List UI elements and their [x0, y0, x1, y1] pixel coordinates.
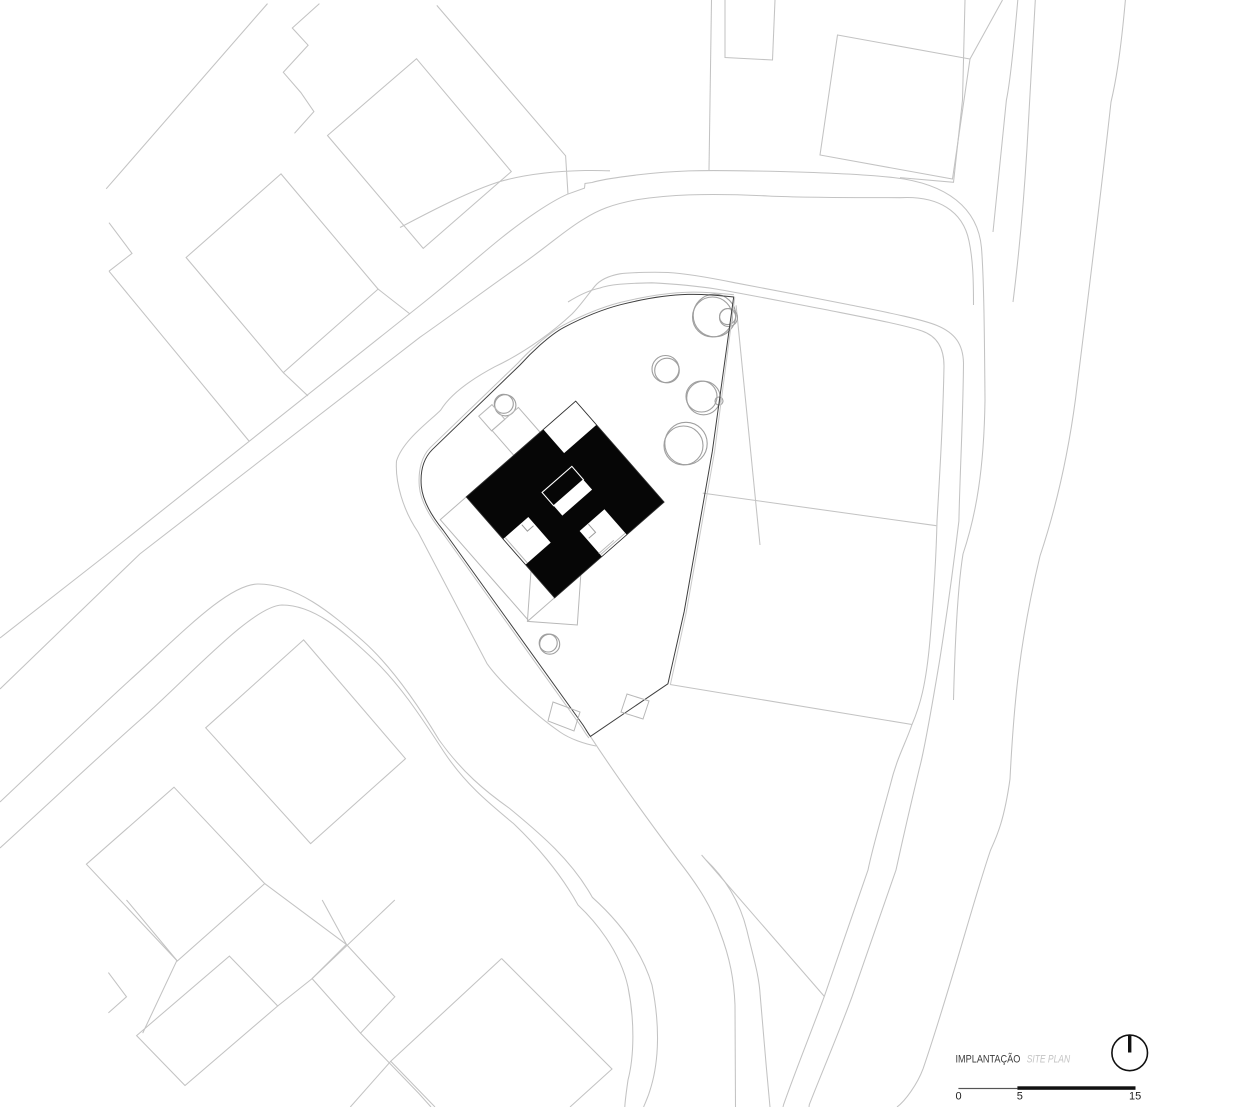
svg-text:5: 5: [1017, 1091, 1023, 1103]
svg-text:IMPLANTAÇÃO: IMPLANTAÇÃO: [956, 1052, 1021, 1065]
svg-text:15: 15: [1129, 1091, 1141, 1103]
svg-text:0: 0: [956, 1091, 962, 1103]
svg-text:SITE PLAN: SITE PLAN: [1027, 1053, 1070, 1065]
